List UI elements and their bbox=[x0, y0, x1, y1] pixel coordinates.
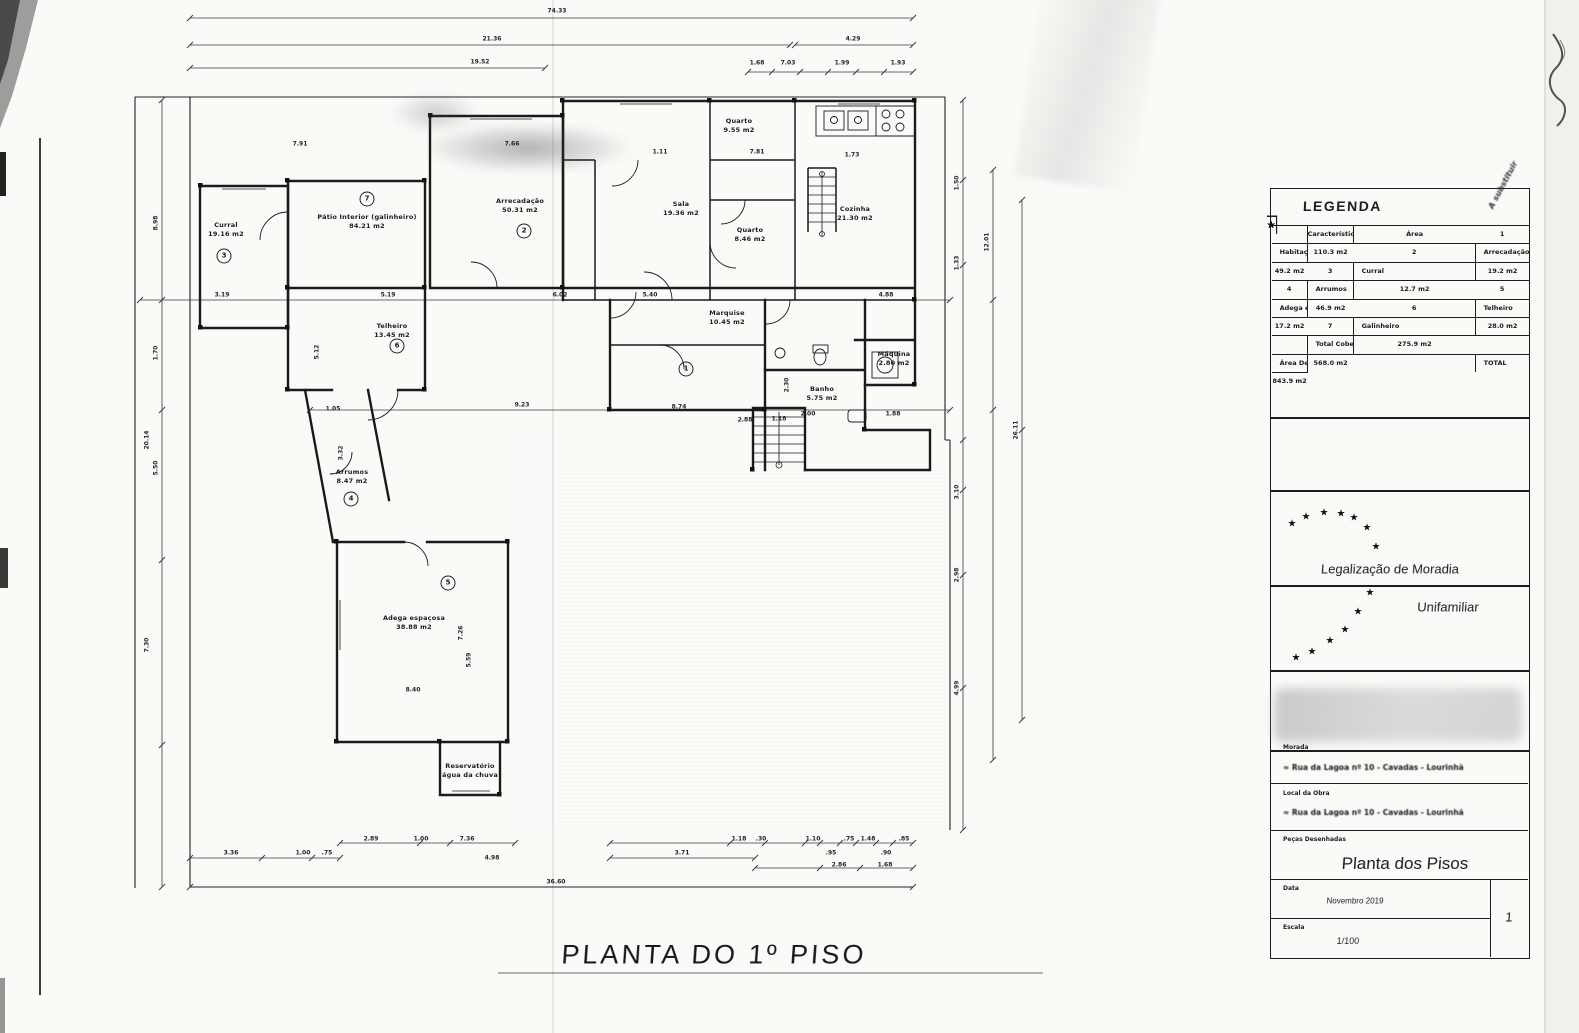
sheet-number: 1 bbox=[1505, 910, 1513, 925]
dimension: .30 bbox=[756, 836, 767, 843]
room-label: Adega espaçosa38.88 m2 bbox=[383, 614, 445, 632]
dimension: 7.66 bbox=[505, 141, 520, 148]
room-label: Arrumos8.47 m2 bbox=[336, 468, 369, 486]
legend-num bbox=[1354, 354, 1476, 372]
dimension: 2.98 bbox=[954, 568, 961, 583]
dimension: 5.40 bbox=[643, 292, 658, 299]
sink-basin bbox=[848, 111, 868, 130]
dimension: 8.74 bbox=[672, 404, 687, 411]
room-label: Sala19.36 m2 bbox=[663, 200, 699, 218]
room-label: Cozinha21.30 m2 bbox=[837, 205, 873, 223]
garden-texture bbox=[558, 472, 948, 828]
dimension: .85 bbox=[899, 836, 910, 843]
legend-area: 110.3 m2 bbox=[1308, 243, 1354, 261]
dimension: 26.11 bbox=[1013, 421, 1020, 440]
legend-table: ★CaracterísticasÁrea ★1Habitação110.3 m2… bbox=[1272, 225, 1530, 391]
room-number-badge: 3 bbox=[217, 249, 232, 264]
legend-area: 19.2 m2 bbox=[1476, 262, 1530, 280]
stamp-box-bottom bbox=[1270, 585, 1530, 672]
dimension: 5.12 bbox=[314, 345, 321, 360]
dimension: 3.32 bbox=[338, 446, 345, 461]
legend-name: TOTAL bbox=[1476, 354, 1530, 372]
dimension: 3.10 bbox=[954, 485, 961, 500]
star-icon: ★ bbox=[1366, 588, 1375, 599]
room-label: Quarto9.55 m2 bbox=[724, 117, 755, 135]
legend-name: Adega espaçosa bbox=[1272, 299, 1308, 317]
legend-area: 568.0 m2 bbox=[1308, 354, 1354, 372]
dimension: 1.10 bbox=[806, 836, 821, 843]
dimension: 1.18 bbox=[772, 416, 787, 423]
morada-value: ≈ Rua da Lagoa nº 10 - Cavadas - Lourinh… bbox=[1283, 763, 1464, 772]
dimension: 8.98 bbox=[153, 216, 160, 231]
scanned-floorplan-sheet: Curral19.16 m2 Pátio Interior (galinheir… bbox=[0, 0, 1579, 1033]
dimension: 1.05 bbox=[326, 406, 341, 413]
dimension: 7.91 bbox=[293, 141, 308, 148]
star-icon: ★ bbox=[1292, 653, 1301, 664]
legend-num bbox=[1272, 225, 1308, 243]
legend-num bbox=[1272, 335, 1308, 353]
dimension: 7.03 bbox=[781, 60, 796, 67]
room-number-badge: 1 bbox=[679, 362, 694, 377]
local-obra-label: Local da Obra bbox=[1283, 790, 1330, 797]
dimension: 1.18 bbox=[732, 836, 747, 843]
dimension: 1.70 bbox=[153, 346, 160, 361]
toilet bbox=[814, 349, 826, 365]
dimension: 21.36 bbox=[483, 36, 502, 43]
sheet-cell-divider bbox=[1490, 880, 1491, 957]
titleblock-divider bbox=[1270, 918, 1490, 919]
dimension: .90 bbox=[881, 850, 892, 857]
data-value: Novembro 2019 bbox=[1326, 897, 1384, 906]
legend-num: 5 bbox=[1476, 280, 1530, 298]
dimension: .95 bbox=[826, 850, 837, 857]
star-icon: ★ bbox=[1372, 542, 1381, 553]
legend-num: 6 bbox=[1354, 299, 1476, 317]
dimension: 5.59 bbox=[466, 653, 473, 668]
escala-value: 1/100 bbox=[1336, 936, 1359, 946]
legend-area: Área bbox=[1354, 225, 1476, 243]
dimension: 4.98 bbox=[485, 855, 500, 862]
titleblock-divider bbox=[1270, 830, 1528, 831]
dimension: 74.33 bbox=[548, 8, 567, 15]
dimension: 4.88 bbox=[879, 292, 894, 299]
dimension: 1.48 bbox=[861, 836, 876, 843]
dimension: 4.29 bbox=[846, 36, 861, 43]
dimension: 6.02 bbox=[553, 292, 568, 299]
dimension: 8.40 bbox=[406, 687, 421, 694]
dimension: 1.99 bbox=[835, 60, 850, 67]
dimension: 7.36 bbox=[460, 836, 475, 843]
room-label: Marquise10.45 m2 bbox=[709, 309, 745, 327]
legend-star: ★ bbox=[1267, 216, 1277, 234]
star-icon: ★ bbox=[1354, 607, 1363, 618]
legend-num: 7 bbox=[1308, 317, 1354, 335]
legend-area: 28.0 m2 bbox=[1476, 317, 1530, 335]
dimension: 7.81 bbox=[750, 149, 765, 156]
room-number-badge: 7 bbox=[360, 192, 375, 207]
legend-area: 46.9 m2 bbox=[1308, 299, 1354, 317]
dimension: 5.19 bbox=[381, 292, 396, 299]
star-icon: ★ bbox=[1341, 625, 1350, 636]
garden-texture bbox=[196, 750, 436, 828]
dimension: 2.88 bbox=[738, 417, 753, 424]
legend-name: Total Coberta bbox=[1308, 335, 1354, 353]
legend-name: Arrumos bbox=[1308, 280, 1354, 298]
dimension: 1.11 bbox=[653, 149, 668, 156]
dimension: 1.00 bbox=[296, 850, 311, 857]
morada-label: Morada bbox=[1283, 744, 1308, 751]
dimension: 9.23 bbox=[515, 402, 530, 409]
sink-basin bbox=[824, 111, 844, 130]
empty-box bbox=[1270, 417, 1530, 492]
plan-title: PLANTA DO 1º PISO bbox=[560, 940, 867, 971]
dimension: 1.88 bbox=[886, 411, 901, 418]
stamp-text-line1: Legalização de Moradia bbox=[1320, 562, 1459, 577]
legend-name: Curral bbox=[1354, 262, 1476, 280]
star-icon: ★ bbox=[1302, 512, 1311, 523]
room-number-badge: 5 bbox=[441, 576, 456, 591]
room-label: Quarto8.46 m2 bbox=[735, 226, 766, 244]
room-label: Telheiro13.45 m2 bbox=[374, 322, 410, 340]
legend-num: 1 bbox=[1476, 225, 1530, 243]
dimension: 1.93 bbox=[891, 60, 906, 67]
star-icon: ★ bbox=[1350, 513, 1359, 524]
room-number-badge: 6 bbox=[390, 339, 405, 354]
dimension: 20.14 bbox=[144, 431, 151, 450]
star-icon: ★ bbox=[1320, 508, 1329, 519]
washbasin bbox=[775, 348, 785, 358]
dimension: 3.19 bbox=[215, 292, 230, 299]
dimension: 1.73 bbox=[845, 152, 860, 159]
dimension: 2.89 bbox=[364, 836, 379, 843]
room-label: Curral19.16 m2 bbox=[208, 221, 244, 239]
legend-name: Arrecadação bbox=[1476, 243, 1530, 261]
stove bbox=[876, 106, 915, 136]
bidet bbox=[848, 410, 866, 422]
room-number-badge: 4 bbox=[344, 492, 359, 507]
room-number-badge: 2 bbox=[517, 224, 532, 239]
legend-name: Área Descoberta bbox=[1272, 354, 1308, 372]
dimension: .75 bbox=[844, 836, 855, 843]
dimension: 2.86 bbox=[832, 862, 847, 869]
legend-area: 275.9 m2 bbox=[1354, 335, 1476, 353]
legend-name: Galinheiro bbox=[1354, 317, 1476, 335]
dimension: .75 bbox=[322, 850, 333, 857]
room-label: Reservatórioágua da chuva bbox=[442, 762, 498, 780]
legend-title: LEGENDA bbox=[1303, 198, 1383, 214]
dimension: 7.26 bbox=[458, 626, 465, 641]
room-label: Arrecadação50.31 m2 bbox=[496, 197, 544, 215]
dimension: 1.33 bbox=[954, 256, 961, 271]
legend-area: 17.2 m2 bbox=[1272, 317, 1308, 335]
legend-area: 843.9 m2 bbox=[1272, 372, 1308, 390]
legend-num: 2 bbox=[1354, 243, 1476, 261]
dimension: 19.52 bbox=[471, 59, 490, 66]
redacted-stamp bbox=[1274, 688, 1522, 742]
legend-area: 12.7 m2 bbox=[1354, 280, 1476, 298]
legend-name: Habitação bbox=[1272, 243, 1308, 261]
room-label: Pátio Interior (galinheiro)84.21 m2 bbox=[317, 213, 416, 231]
dimension: 5.50 bbox=[153, 461, 160, 476]
star-icon: ★ bbox=[1326, 636, 1335, 647]
pecas-value: Planta dos Pisos bbox=[1341, 854, 1469, 874]
star-icon: ★ bbox=[1363, 523, 1372, 534]
dimension: 1.50 bbox=[954, 176, 961, 191]
data-label: Data bbox=[1283, 885, 1299, 892]
escala-label: Escala bbox=[1283, 924, 1304, 931]
dimension: 1.00 bbox=[414, 836, 429, 843]
legend-num: 4 bbox=[1272, 280, 1308, 298]
legend-area: 49.2 m2 bbox=[1272, 262, 1308, 280]
star-icon: ★ bbox=[1308, 647, 1317, 658]
legend-name: Características bbox=[1308, 225, 1354, 243]
dimension: 7.30 bbox=[144, 638, 151, 653]
legend-num bbox=[1476, 335, 1530, 353]
room-label: Banho5.75 m2 bbox=[807, 385, 838, 403]
titleblock-divider bbox=[1270, 783, 1528, 784]
stamp-text-line2: Unifamiliar bbox=[1417, 600, 1479, 615]
legend-num: 3 bbox=[1308, 262, 1354, 280]
dimension: 36.60 bbox=[547, 879, 566, 886]
dimension: 3.36 bbox=[224, 850, 239, 857]
dimension: 1.68 bbox=[878, 862, 893, 869]
garden-texture bbox=[512, 432, 558, 828]
local-obra-value: ≈ Rua da Lagoa nº 10 - Cavadas - Lourinh… bbox=[1283, 808, 1464, 817]
dimension: 3.71 bbox=[675, 850, 690, 857]
garden-texture bbox=[558, 402, 608, 472]
dimension: 2.00 bbox=[801, 411, 816, 418]
dimension: 4.99 bbox=[954, 681, 961, 696]
dimension: 2.30 bbox=[784, 378, 791, 393]
star-icon: ★ bbox=[1288, 519, 1297, 530]
legend-name: Telheiro bbox=[1476, 299, 1530, 317]
room-label: Máquina2.80 m2 bbox=[878, 350, 911, 368]
dimension: 12.01 bbox=[984, 233, 991, 252]
star-icon: ★ bbox=[1337, 509, 1346, 520]
dimension: 1.68 bbox=[750, 60, 765, 67]
pecas-label: Peças Desenhadas bbox=[1283, 836, 1346, 843]
